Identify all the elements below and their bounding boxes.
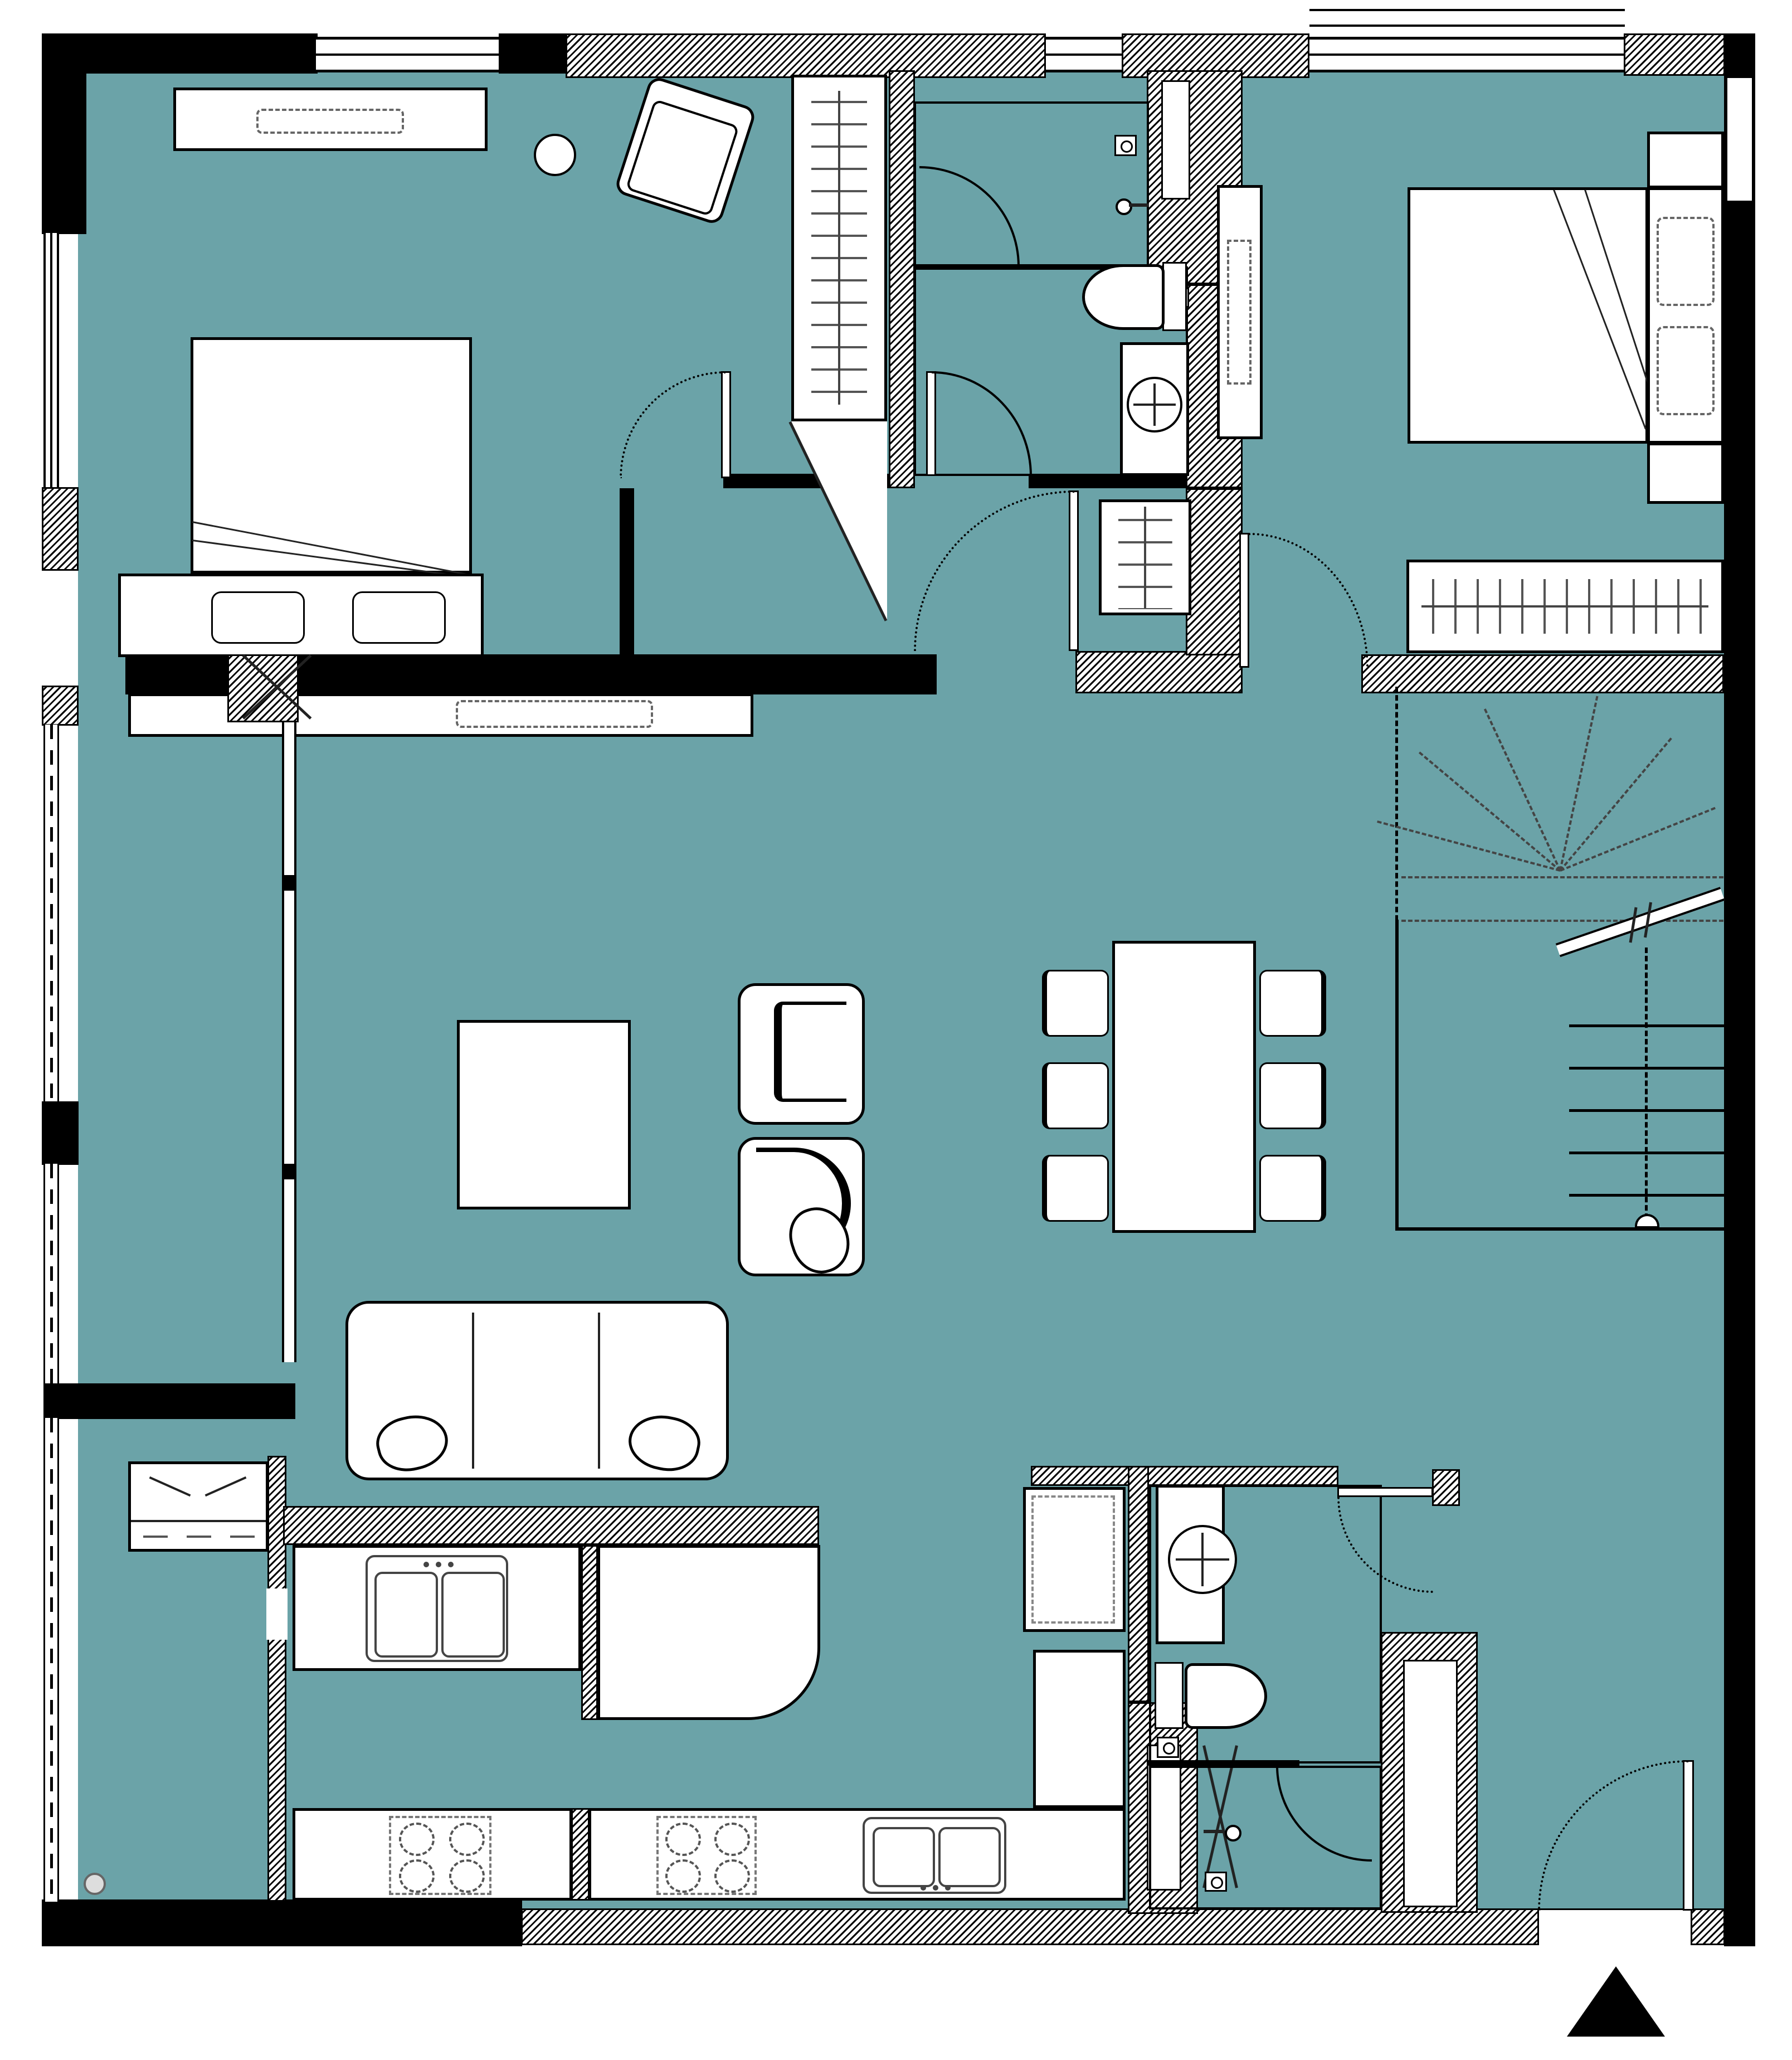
dining-chair-l2 [1042, 1062, 1109, 1129]
wall-top-hatched-3 [1624, 33, 1725, 76]
armchair-a [738, 983, 865, 1125]
dining-table [1112, 941, 1256, 1233]
bed2 [1408, 187, 1648, 444]
wardrobe2 [1406, 560, 1724, 653]
coat-closet [1099, 499, 1191, 615]
washbasin1 [1127, 377, 1182, 433]
bedroom2-door-leaf [1239, 533, 1249, 668]
armchair-tilted-cushion [625, 99, 739, 216]
window-left-dashed-2 [43, 1164, 59, 1384]
floor-drain-1 [1114, 135, 1137, 156]
wall-bathroom2-top [1031, 1466, 1338, 1486]
window-left-dashed-1 [43, 725, 59, 1102]
duct-shaft-1 [1161, 80, 1190, 200]
tall-cabinet [1033, 1650, 1126, 1808]
tv-on-console [456, 700, 653, 728]
wall-right-niche [1727, 78, 1752, 201]
stairs-center-dash [1645, 948, 1648, 1227]
tv-on-dresser [256, 109, 404, 134]
entry-threshold [1539, 1908, 1691, 1945]
bed1-pillow-1 [211, 591, 305, 644]
wall-balcony-divider [43, 1383, 295, 1419]
floor-drain-3 [1157, 1737, 1179, 1758]
bed2-pillow-2 [1657, 326, 1715, 415]
wall-left-hatched-2 [42, 686, 79, 726]
fridge [1023, 1487, 1126, 1632]
partition-lower-door-gap [266, 1588, 288, 1640]
wall-left-hatched-1 [42, 487, 79, 571]
window-left-1 [43, 233, 59, 488]
wall-bottom-left [42, 1899, 522, 1946]
dining-chair-l1 [1042, 970, 1109, 1037]
kitchen-sink-lower [863, 1817, 1006, 1894]
dining-chair-r2 [1259, 1062, 1326, 1129]
armchair-b [738, 1137, 865, 1276]
stairs-cut-line [1395, 687, 1398, 921]
wall-bathroom1-left [889, 70, 915, 488]
shower2-head-icon [1204, 1818, 1237, 1846]
wall-bedroom2-south [1361, 654, 1724, 693]
toilet2-tank [1155, 1662, 1184, 1729]
sofa-divider-1 [472, 1313, 474, 1469]
floor-plan-page [0, 0, 1792, 2060]
bed2-pillow-zone [1647, 187, 1724, 444]
coffee-table [457, 1020, 631, 1209]
glass-partition-tick-2 [283, 1164, 295, 1179]
floor-plan [0, 0, 1792, 2060]
window-left-dashed-3 [43, 1418, 59, 1902]
kitchen-counter-upper-right [597, 1545, 820, 1720]
wall-right [1724, 33, 1755, 1946]
floor-drain-4 [1205, 1872, 1227, 1892]
stairs-dash-h1 [1401, 876, 1723, 878]
wall-bottom-hatched-2 [1691, 1908, 1725, 1945]
bathroom2-divider [1148, 1760, 1299, 1766]
wall-left-top-block [42, 33, 86, 234]
wall-kitchen-top [283, 1506, 819, 1545]
tv-in-cabinet2 [1227, 240, 1252, 385]
wall-bedroom1-jog [620, 488, 634, 655]
ledge-line-2 [1309, 25, 1625, 27]
washbasin2 [1168, 1525, 1237, 1594]
bed1-pillow-2 [352, 591, 446, 644]
window-bathroom1 [1046, 37, 1123, 72]
glass-partition-tick-1 [283, 875, 295, 891]
wall-corridor-south [632, 654, 937, 694]
wall-corridor-north-right [1075, 651, 1243, 693]
window-top-1 [316, 37, 500, 72]
cooktop-1 [389, 1816, 491, 1895]
stairs-dash-h2 [1401, 920, 1723, 922]
dining-chair-r3 [1259, 1155, 1326, 1222]
toilet1-tank [1162, 262, 1187, 331]
cooktop-2 [656, 1816, 757, 1895]
wall-bathroom2-left [1128, 1466, 1149, 1702]
toilet2-bowl [1185, 1663, 1267, 1729]
ledge-line-1 [1309, 9, 1625, 11]
armchair-a-seat [774, 1002, 846, 1102]
kitchen-counter-divider-lower [571, 1808, 590, 1901]
sofa-divider-2 [598, 1313, 600, 1469]
window-bedroom2 [1309, 37, 1625, 72]
shower1-head-icon [1116, 192, 1149, 220]
north-arrow [1567, 1966, 1665, 2037]
wall-bedroom1-south [125, 654, 634, 694]
stairs-boundary-v [1395, 920, 1399, 1230]
kitchen-counter-divider-upper [581, 1545, 598, 1720]
bathroom2-door-leaf [1337, 1487, 1433, 1497]
duct-shaft-3 [1403, 1660, 1458, 1907]
wall-top-hatched-1 [566, 33, 1046, 78]
dining-chair-r1 [1259, 970, 1326, 1037]
wardrobe1 [791, 75, 887, 421]
bed2-nightstand-top [1647, 132, 1724, 188]
floor-drain-round [84, 1873, 106, 1895]
toilet1-bowl [1082, 264, 1165, 330]
stool [534, 134, 576, 176]
bed1 [191, 337, 472, 574]
wall-bathroom2-top-corner [1432, 1469, 1460, 1506]
bed2-nightstand-bottom [1647, 443, 1724, 504]
wall-closet-right [1186, 488, 1243, 655]
dining-chair-l3 [1042, 1155, 1109, 1222]
tv-console [128, 693, 753, 737]
glass-partition [282, 722, 296, 1362]
column-x [227, 654, 299, 722]
wall-left-block-mid [42, 1101, 79, 1165]
laundry-cabinet [128, 1461, 269, 1552]
wall-top-2 [499, 33, 567, 74]
bed2-pillow-1 [1657, 217, 1715, 306]
kitchen-sink-upper [366, 1555, 508, 1662]
wall-bottom-hatched [521, 1908, 1539, 1945]
